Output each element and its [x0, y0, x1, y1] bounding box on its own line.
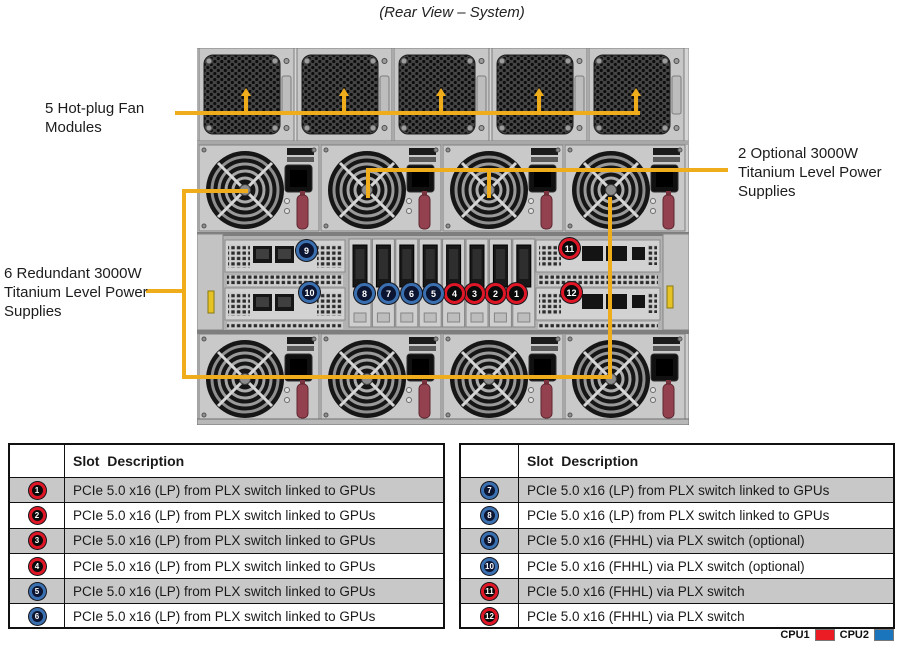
slot-description: PCIe 5.0 x16 (FHHL) via PLX switch (opti… — [519, 529, 893, 553]
table-row: 11 PCIe 5.0 x16 (FHHL) via PLX switch — [461, 578, 893, 603]
callout-line-optional-horizontal — [366, 168, 728, 172]
table-header-row: Slot Description — [461, 445, 893, 477]
table-header-row: Slot Description — [10, 445, 443, 477]
slot-table-right: Slot Description 7 PCIe 5.0 x16 (LP) fro… — [459, 443, 895, 629]
cpu2-color-swatch — [874, 629, 894, 641]
slot-badge-11: 11 — [481, 583, 498, 600]
slot-number: 4 — [452, 289, 457, 299]
header-label: Slot Description — [65, 445, 443, 477]
manual-figure-page: (Rear View – System) — [0, 0, 904, 648]
fan-arrow-1 — [241, 88, 251, 96]
slot-number: 6 — [409, 289, 414, 299]
slot-number: 12 — [566, 288, 576, 298]
header-label: Slot Description — [519, 445, 893, 477]
figure-title: (Rear View – System) — [0, 4, 904, 21]
slot-description: PCIe 5.0 x16 (LP) from PLX switch linked… — [65, 604, 443, 628]
diagram-badge-slot-1: 1 — [506, 283, 527, 304]
diagram-badge-slot-5: 5 — [423, 283, 444, 304]
slot-description: PCIe 5.0 x16 (FHHL) via PLX switch (opti… — [519, 554, 893, 578]
table-row: 5 PCIe 5.0 x16 (LP) from PLX switch link… — [10, 578, 443, 603]
callout-label-redundant-psu: 6 Redundant 3000W Titanium Level Power S… — [4, 264, 148, 321]
slot-badge-2: 2 — [29, 507, 46, 524]
fan-arrow-3 — [436, 88, 446, 96]
table-row: 10 PCIe 5.0 x16 (FHHL) via PLX switch (o… — [461, 553, 893, 578]
slot-badge-9: 9 — [481, 532, 498, 549]
diagram-badge-slot-6: 6 — [401, 283, 422, 304]
diagram-badge-slot-3: 3 — [464, 283, 485, 304]
slot-number: 10 — [304, 288, 314, 298]
table-row: 7 PCIe 5.0 x16 (LP) from PLX switch link… — [461, 477, 893, 502]
server-rear-illustration — [197, 48, 689, 425]
slot-badge-1: 1 — [29, 482, 46, 499]
slot-number: 9 — [304, 246, 309, 256]
slot-badge-10: 10 — [481, 558, 498, 575]
slot-description: PCIe 5.0 x16 (LP) from PLX switch linked… — [65, 478, 443, 502]
callout-line-fan-tick-1 — [244, 95, 248, 112]
slot-number: 2 — [493, 289, 498, 299]
fan-arrow-2 — [339, 88, 349, 96]
table-row: 1 PCIe 5.0 x16 (LP) from PLX switch link… — [10, 477, 443, 502]
diagram-badge-slot-11: 11 — [559, 238, 580, 259]
callout-line-redundant-vertical — [182, 189, 186, 379]
cpu1-label: CPU1 — [780, 629, 809, 641]
callout-label-fan-modules: 5 Hot-plug Fan Modules — [45, 99, 144, 137]
slot-number: 11 — [565, 244, 575, 254]
callout-line-optional-drop-2 — [487, 168, 491, 198]
callout-line-fan-tick-3 — [439, 95, 443, 112]
diagram-badge-slot-8: 8 — [354, 283, 375, 304]
diagram-badge-slot-4: 4 — [444, 283, 465, 304]
slot-number: 8 — [362, 289, 367, 299]
callout-line-optional-drop-1 — [366, 168, 370, 198]
table-row: 2 PCIe 5.0 x16 (LP) from PLX switch link… — [10, 502, 443, 527]
callout-line-psu4-vertical — [608, 197, 612, 379]
fan-arrow-4 — [534, 88, 544, 96]
slot-description: PCIe 5.0 x16 (LP) from PLX switch linked… — [65, 529, 443, 553]
table-row: 4 PCIe 5.0 x16 (LP) from PLX switch link… — [10, 553, 443, 578]
callout-line-fan-tick-4 — [537, 95, 541, 112]
callout-line-redundant-top — [182, 189, 248, 193]
slot-description: PCIe 5.0 x16 (LP) from PLX switch linked… — [65, 579, 443, 603]
slot-badge-7: 7 — [481, 482, 498, 499]
diagram-badge-slot-12: 12 — [561, 282, 582, 303]
diagram-badge-slot-2: 2 — [485, 283, 506, 304]
table-row: 6 PCIe 5.0 x16 (LP) from PLX switch link… — [10, 603, 443, 628]
callout-line-redundant-bottom — [182, 375, 612, 379]
slot-badge-6: 6 — [29, 608, 46, 625]
table-row: 9 PCIe 5.0 x16 (FHHL) via PLX switch (op… — [461, 528, 893, 553]
callout-line-fan-tick-2 — [342, 95, 346, 112]
diagram-badge-slot-9: 9 — [296, 240, 317, 261]
header-badge-cell — [10, 445, 65, 477]
cpu2-label: CPU2 — [840, 629, 869, 641]
slot-table-left: Slot Description 1 PCIe 5.0 x16 (LP) fro… — [8, 443, 445, 629]
diagram-badge-slot-10: 10 — [299, 282, 320, 303]
header-badge-cell — [461, 445, 519, 477]
callout-line-fan-tick-5 — [634, 95, 638, 112]
table-row: 3 PCIe 5.0 x16 (LP) from PLX switch link… — [10, 528, 443, 553]
callout-line-redundant-stub — [146, 289, 186, 293]
slot-number: 3 — [472, 289, 477, 299]
slot-description: PCIe 5.0 x16 (LP) from PLX switch linked… — [519, 503, 893, 527]
diagram-badge-slot-7: 7 — [378, 283, 399, 304]
cpu-legend: CPU1 CPU2 — [780, 629, 894, 641]
slot-number: 5 — [431, 289, 436, 299]
table-row: 8 PCIe 5.0 x16 (LP) from PLX switch link… — [461, 502, 893, 527]
slot-description: PCIe 5.0 x16 (LP) from PLX switch linked… — [519, 478, 893, 502]
slot-description: PCIe 5.0 x16 (LP) from PLX switch linked… — [65, 503, 443, 527]
table-row: 12 PCIe 5.0 x16 (FHHL) via PLX switch — [461, 603, 893, 628]
callout-label-optional-psu: 2 Optional 3000W Titanium Level Power Su… — [738, 144, 882, 201]
cpu1-color-swatch — [815, 629, 835, 641]
slot-badge-12: 12 — [481, 608, 498, 625]
slot-badge-5: 5 — [29, 583, 46, 600]
slot-badge-3: 3 — [29, 532, 46, 549]
slot-number: 1 — [514, 289, 519, 299]
chassis-svg — [197, 48, 689, 425]
slot-description: PCIe 5.0 x16 (FHHL) via PLX switch — [519, 604, 893, 628]
slot-number: 7 — [386, 289, 391, 299]
slot-description: PCIe 5.0 x16 (LP) from PLX switch linked… — [65, 554, 443, 578]
fan-arrow-5 — [631, 88, 641, 96]
slot-description: PCIe 5.0 x16 (FHHL) via PLX switch — [519, 579, 893, 603]
slot-badge-4: 4 — [29, 558, 46, 575]
slot-badge-8: 8 — [481, 507, 498, 524]
